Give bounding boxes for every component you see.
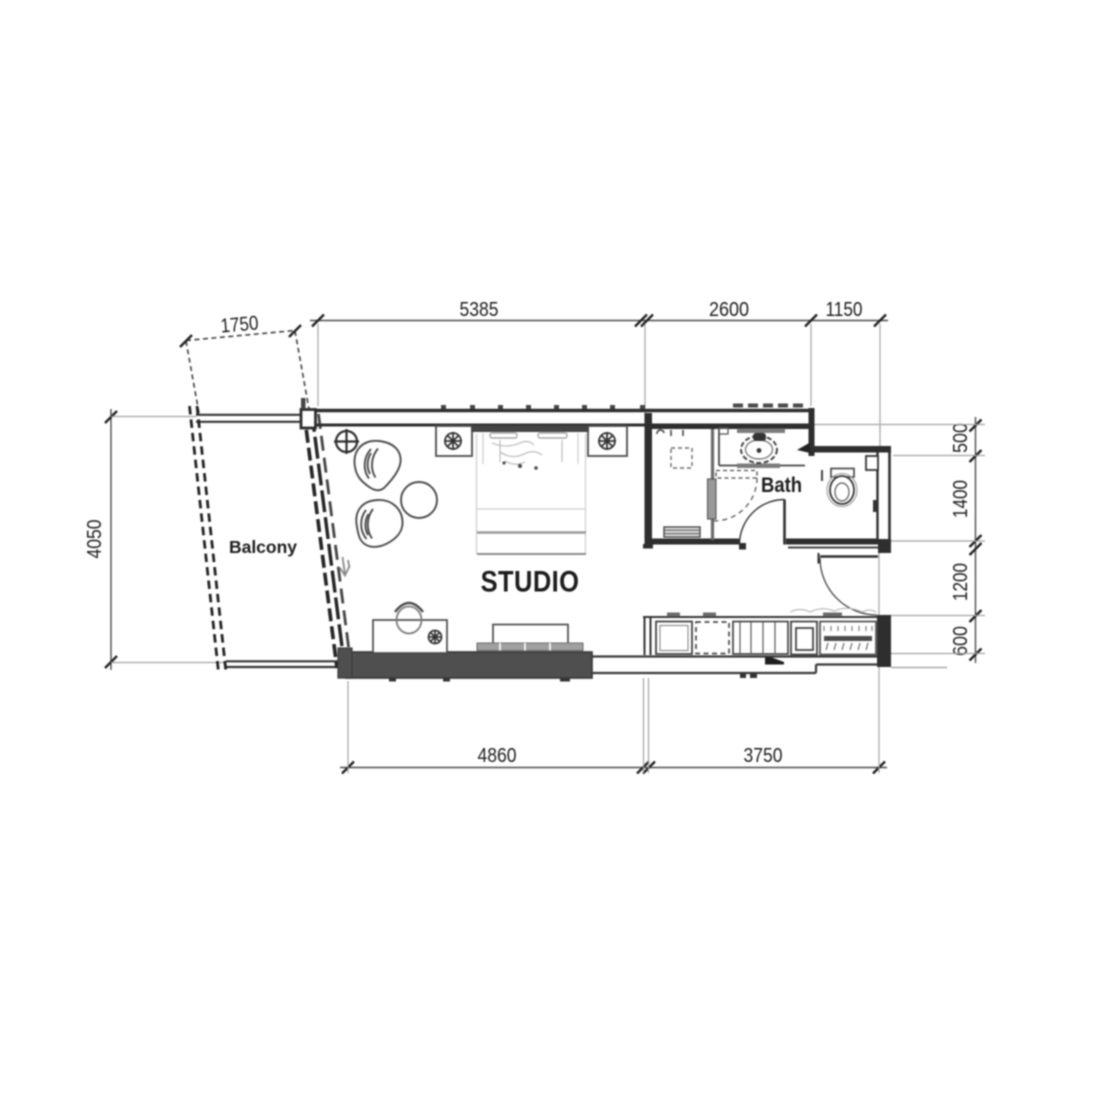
svg-text:3750: 3750 (744, 745, 783, 767)
svg-text:500: 500 (950, 423, 972, 453)
svg-text:4860: 4860 (478, 745, 517, 767)
svg-text:STUDIO: STUDIO (481, 565, 580, 598)
svg-text:5385: 5385 (460, 299, 499, 321)
svg-text:Bath: Bath (761, 474, 802, 497)
svg-text:1150: 1150 (826, 299, 863, 321)
svg-text:2600: 2600 (709, 299, 749, 321)
svg-text:600: 600 (950, 626, 972, 656)
svg-text:1750: 1750 (220, 312, 260, 337)
svg-text:1400: 1400 (950, 480, 972, 518)
svg-text:1200: 1200 (950, 563, 972, 601)
svg-text:Balcony: Balcony (229, 537, 297, 557)
svg-text:4050: 4050 (84, 520, 106, 559)
